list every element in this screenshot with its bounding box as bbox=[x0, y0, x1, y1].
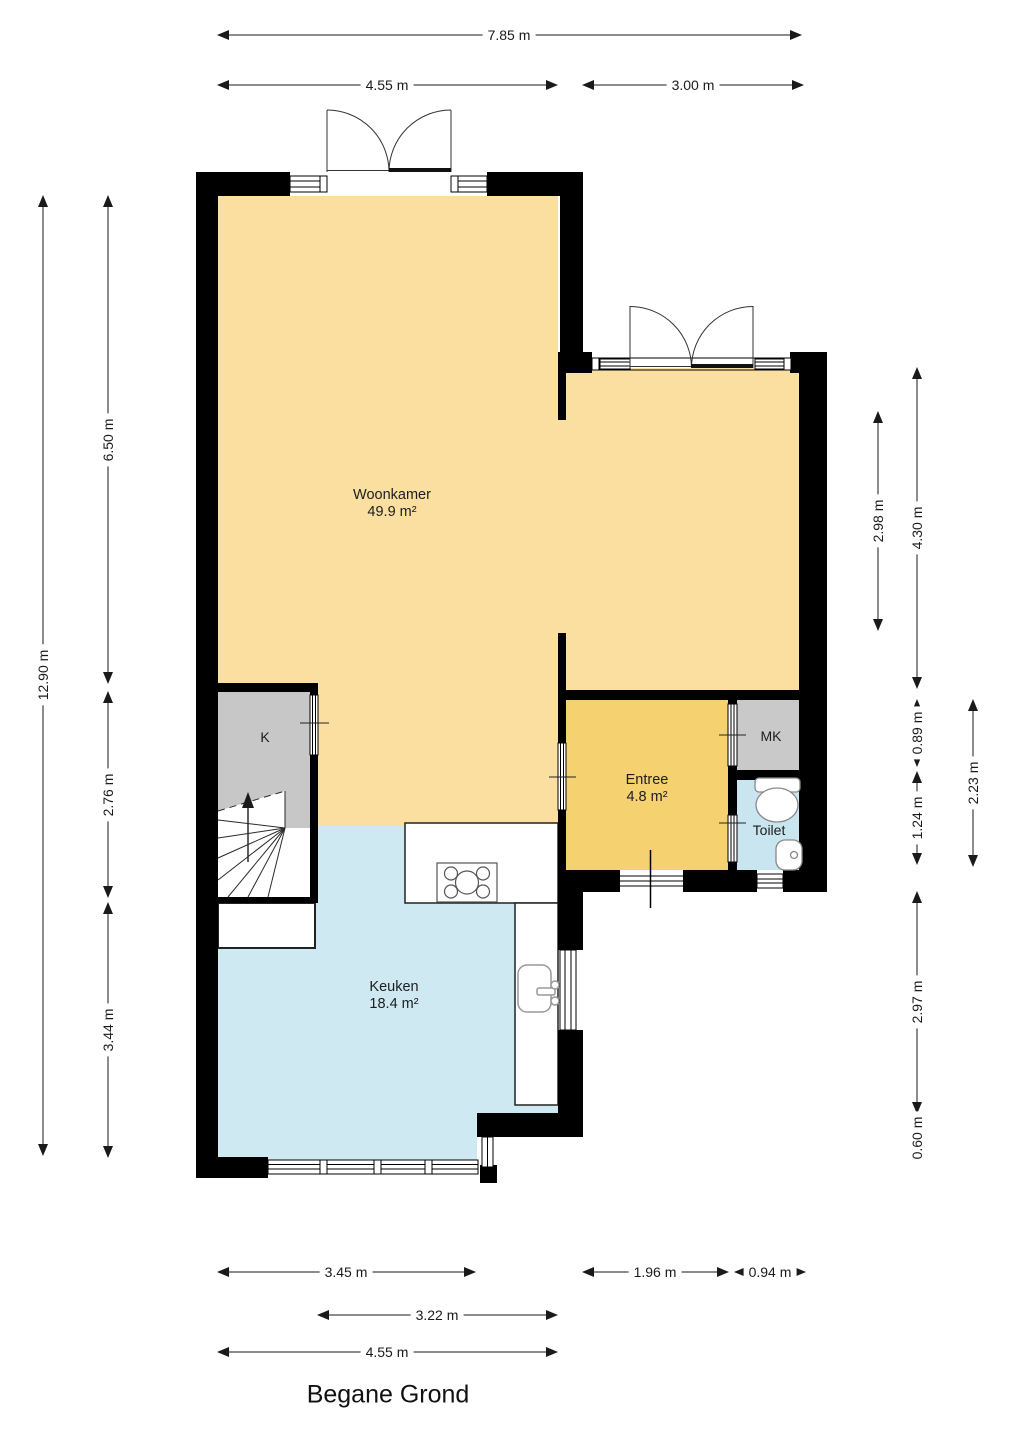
dim-top-right-section: 3.00 m bbox=[667, 77, 720, 93]
dim-bottom-left-section: 4.55 m bbox=[361, 1344, 414, 1360]
toilet-sink-icon bbox=[776, 840, 802, 870]
room-name: Entree bbox=[626, 772, 669, 789]
door-jamb bbox=[784, 358, 791, 370]
floor-plan-drawing bbox=[0, 0, 1018, 1440]
french-door-rightroom-icon bbox=[630, 306, 753, 368]
dim-right-room: 4.30 m bbox=[909, 502, 925, 555]
toilet-icon bbox=[755, 778, 800, 822]
room-name: Woonkamer bbox=[353, 487, 431, 504]
room-label-k: K bbox=[260, 729, 269, 745]
dim-bottom-toilet: 0.94 m bbox=[744, 1264, 797, 1280]
plan-title: Begane Grond bbox=[307, 1381, 470, 1410]
dim-top-total: 7.85 m bbox=[483, 27, 536, 43]
room-area: 49.9 m² bbox=[353, 504, 431, 521]
door-jamb bbox=[592, 358, 599, 370]
floor-plan-page: 7.85 m 4.55 m 3.00 m 12.90 m 6.50 m 2.76… bbox=[0, 0, 1018, 1440]
room-label-woonkamer: Woonkamer 49.9 m² bbox=[353, 487, 431, 521]
dim-top-left-section: 4.55 m bbox=[361, 77, 414, 93]
room-woonkamer-floor-lower bbox=[318, 683, 558, 826]
dim-left-total: 12.90 m bbox=[35, 645, 51, 706]
door-k-closet bbox=[310, 695, 318, 755]
dim-bottom-kitchen: 3.45 m bbox=[320, 1264, 373, 1280]
dim-right-mk-toilet: 2.23 m bbox=[965, 757, 981, 810]
dim-left-middle: 2.76 m bbox=[100, 769, 116, 822]
french-door-top-icon bbox=[327, 110, 451, 172]
room-label-toilet: Toilet bbox=[753, 822, 786, 838]
window-kitchen-south bbox=[268, 1160, 478, 1174]
window-kitchen-east bbox=[560, 950, 576, 1030]
dim-left-upper: 6.50 m bbox=[100, 414, 116, 467]
room-woonkamer-floor bbox=[218, 196, 558, 683]
stove-icon bbox=[437, 863, 497, 902]
dim-right-mk: 0.89 m bbox=[909, 707, 925, 760]
room-label-mk: MK bbox=[761, 728, 782, 744]
cabinet-under-stairs bbox=[218, 903, 315, 948]
dim-bottom-entrance: 1.96 m bbox=[629, 1264, 682, 1280]
dim-right-window: 2.98 m bbox=[870, 495, 886, 548]
window-corner bbox=[482, 1137, 493, 1167]
room-woonkamer-floor-right bbox=[558, 368, 799, 690]
window-rightroom-right bbox=[755, 359, 787, 369]
room-name: Keuken bbox=[369, 979, 418, 996]
room-label-entree: Entree 4.8 m² bbox=[626, 772, 669, 806]
room-area: 4.8 m² bbox=[626, 789, 669, 806]
dim-bottom-kitchen-inner: 3.22 m bbox=[411, 1307, 464, 1323]
window-rightroom-left bbox=[600, 359, 630, 369]
door-toilet bbox=[728, 815, 737, 862]
room-floors bbox=[218, 196, 799, 1160]
dim-right-kitchen: 2.97 m bbox=[909, 976, 925, 1029]
room-label-keuken: Keuken 18.4 m² bbox=[369, 979, 418, 1013]
dim-right-step: 0.60 m bbox=[909, 1112, 925, 1165]
dim-left-lower: 3.44 m bbox=[100, 1004, 116, 1057]
window-toilet bbox=[757, 874, 783, 888]
dim-right-toilet: 1.24 m bbox=[909, 792, 925, 845]
door-jamb bbox=[451, 176, 458, 192]
door-jamb bbox=[320, 176, 327, 192]
room-area: 18.4 m² bbox=[369, 996, 418, 1013]
